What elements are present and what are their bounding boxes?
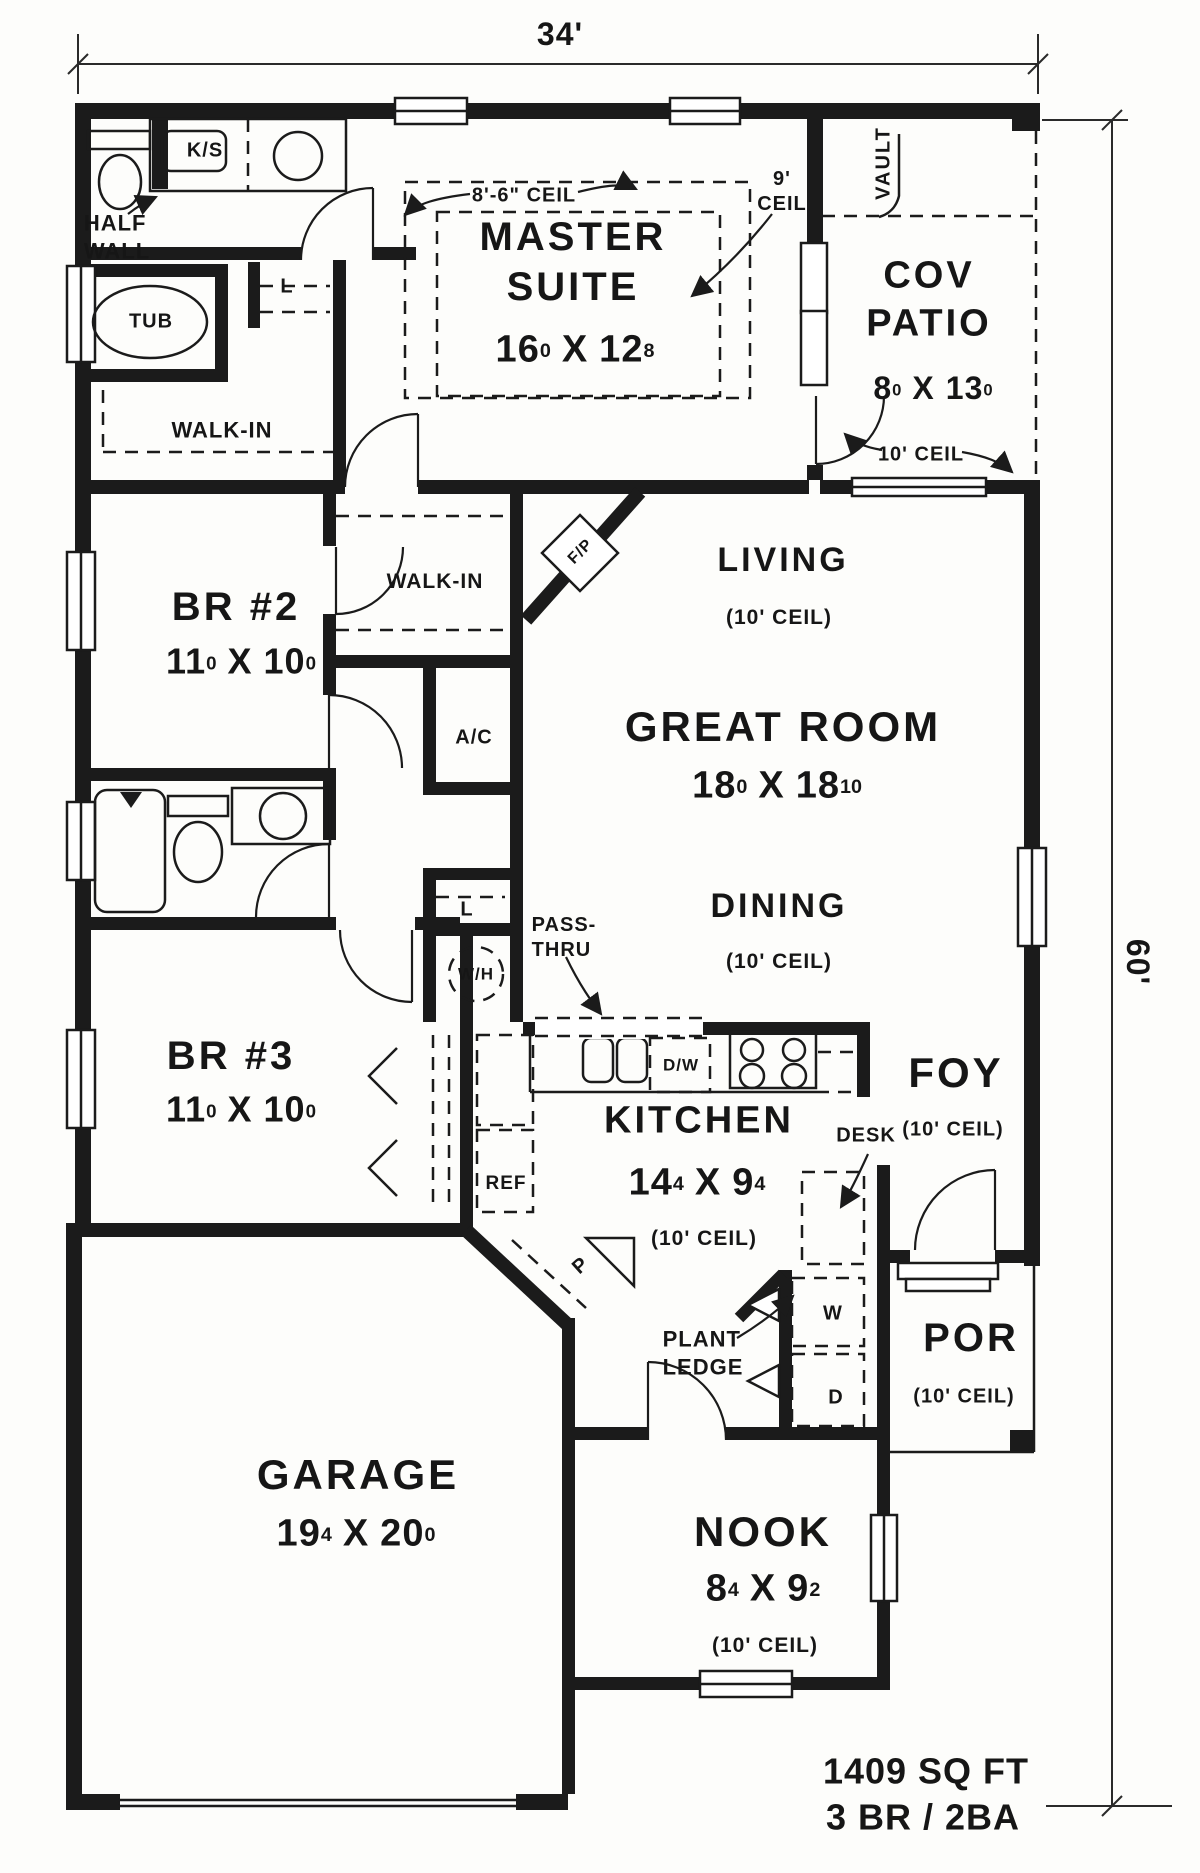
shower-head-icon — [120, 792, 142, 808]
right-dimension: 60' — [1118, 939, 1158, 985]
br2-name: BR #2 — [172, 582, 300, 632]
master-linen-label: L — [280, 275, 293, 300]
nook-size: 84X92 — [706, 1565, 821, 1613]
kitchen-name: KITCHEN — [604, 1097, 794, 1145]
bath2-vanity — [232, 788, 330, 844]
dining-ceiling-note: (10' CEIL) — [726, 949, 832, 975]
tub-label: TUB — [129, 310, 173, 335]
desk-label: DESK — [836, 1124, 896, 1149]
front-door — [915, 1170, 995, 1250]
br3-door — [340, 930, 412, 1002]
master-door — [345, 414, 418, 487]
kitchen-size: 144X94 — [629, 1159, 766, 1207]
water-heater-label: W/H — [458, 963, 494, 984]
porch-name: POR — [923, 1313, 1019, 1363]
vault-label: VAULT — [872, 126, 897, 200]
br2-door — [329, 695, 402, 768]
great-room-size: 180X1810 — [692, 762, 862, 810]
toilet2 — [174, 822, 222, 882]
kitchen-sink-basin2 — [617, 1038, 647, 1082]
nook-name: NOOK — [694, 1506, 832, 1559]
br3-size: 110X100 — [166, 1087, 316, 1132]
kitchen-sink-basin1 — [583, 1038, 613, 1082]
porch-ceiling-note: (10' CEIL) — [913, 1385, 1014, 1410]
master-suite-name: MASTER SUITE — [480, 212, 667, 312]
ac-label: A/C — [455, 726, 492, 751]
plant-ledge-label: PLANT LEDGE — [663, 1326, 744, 1381]
area-summary: 1409 SQ FT — [823, 1749, 1029, 1794]
foyer-name: FOY — [908, 1047, 1003, 1100]
master-suite-size: 160X128 — [496, 326, 655, 374]
half-wall-label: HALF WALL — [84, 210, 150, 265]
living-ceiling-note: (10' CEIL) — [726, 605, 832, 631]
kitchen-ceiling-note: (10' CEIL) — [651, 1226, 757, 1252]
shower — [95, 790, 165, 912]
pass-thru-label: PASS- THRU — [532, 913, 597, 963]
hall-linen-label: L — [460, 898, 473, 923]
toilet2-tank — [168, 796, 228, 816]
living-name: LIVING — [717, 539, 848, 582]
top-dimension: 34' — [537, 14, 583, 54]
master-low-ceiling-note: 8'-6" CEIL — [472, 184, 576, 209]
toilet-tank — [88, 131, 150, 149]
cov-patio-name: COV PATIO — [866, 253, 991, 348]
bath2-sink — [260, 793, 306, 839]
floor-plan-page: 34' 60' MASTER SUITE 160X128 8'-6" CEIL … — [0, 0, 1200, 1873]
br3-name: BR #3 — [167, 1031, 295, 1081]
washer-label: W — [823, 1302, 843, 1327]
bed-bath-summary: 3 BR / 2BA — [826, 1795, 1020, 1840]
pantry-shelf — [586, 1238, 634, 1286]
master-bath-door — [301, 188, 373, 260]
foyer-ceiling-note: (10' CEIL) — [902, 1118, 1003, 1143]
hall-bath-door — [256, 844, 329, 917]
cov-patio-size: 80X130 — [873, 368, 992, 408]
dryer-label: D — [828, 1386, 843, 1411]
br2-walkin-label: WALK-IN — [387, 569, 484, 595]
master-high-ceiling-note: 9' CEIL — [757, 167, 807, 217]
refrigerator — [477, 1130, 533, 1212]
patio-ceiling-note: 10' CEIL — [878, 443, 964, 468]
ks-label: K/S — [187, 139, 223, 164]
garage-size: 194X200 — [277, 1510, 436, 1558]
dishwasher-label: D/W — [663, 1054, 699, 1075]
garage-name: GARAGE — [257, 1449, 459, 1502]
toilet — [99, 155, 141, 209]
desk — [802, 1172, 864, 1264]
great-room-name: GREAT ROOM — [625, 701, 941, 754]
master-walkin-label: WALK-IN — [171, 416, 272, 444]
br2-size: 110X100 — [166, 639, 316, 684]
dryer-door-icon — [748, 1365, 779, 1397]
nook-ceiling-note: (10' CEIL) — [712, 1633, 818, 1659]
vanity-sink — [274, 132, 322, 180]
stove — [730, 1032, 816, 1088]
refrigerator-label: REF — [486, 1172, 527, 1196]
dining-name: DINING — [711, 885, 848, 928]
